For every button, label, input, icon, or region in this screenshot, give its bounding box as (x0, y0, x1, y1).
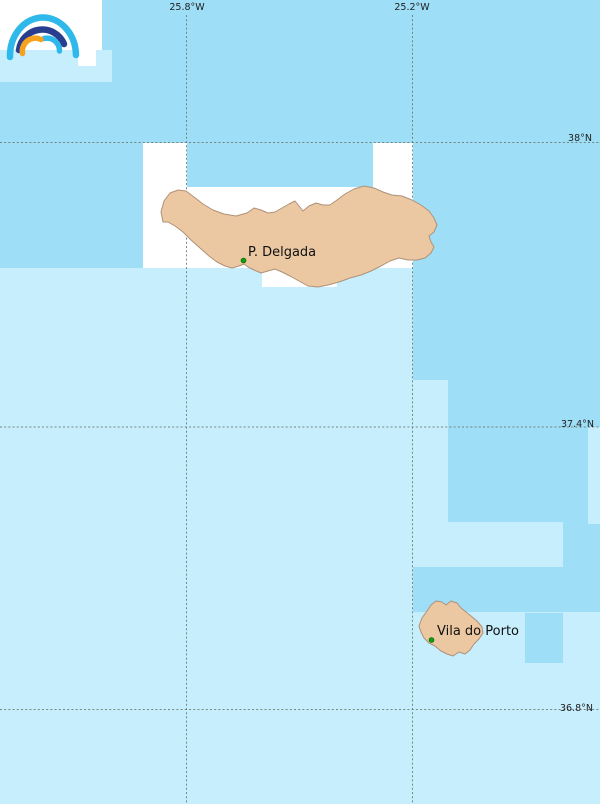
meridian-label-25-8w: 25.8°W (169, 2, 204, 13)
ocean-light-cell (413, 380, 448, 567)
ocean-light-cell (588, 427, 600, 524)
logo-orange-arc (22, 38, 41, 53)
ocean-medium-cell (525, 613, 563, 663)
p-delgada-label[interactable]: P. Delgada (248, 245, 316, 260)
rainbow-arcs-logo-icon (0, 0, 100, 70)
parallel-label-38n: 38°N (568, 133, 592, 144)
logo-inner-cyan-arc (44, 38, 60, 51)
vila-do-porto-marker-dot[interactable] (429, 638, 434, 643)
vila-do-porto-label[interactable]: Vila do Porto (437, 624, 519, 639)
p-delgada-marker-dot[interactable] (241, 258, 246, 263)
map-canvas: 25.8°W 25.2°W 38°N 37.4°N 36.8°N P. Delg… (0, 0, 600, 804)
parallel-label-37-4n: 37.4°N (561, 419, 594, 430)
meridian-label-25-2w: 25.2°W (394, 2, 429, 13)
map-graphics (0, 0, 600, 804)
ocean-medium-cell (187, 143, 373, 187)
ocean-light-cell (0, 268, 413, 804)
parallel-label-36-8n: 36.8°N (560, 703, 593, 714)
ocean-light-cell (448, 522, 563, 567)
